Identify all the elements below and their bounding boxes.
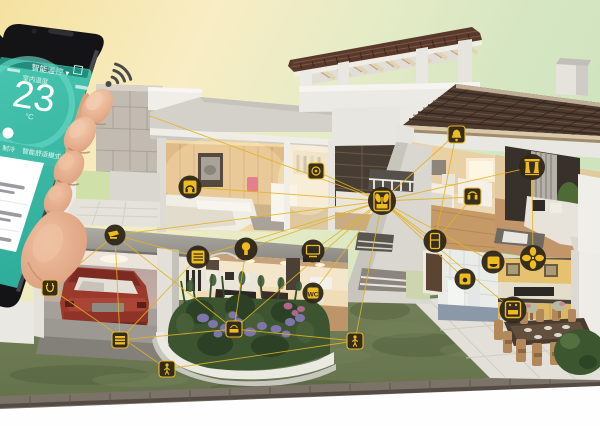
svg-text:WC: WC: [308, 292, 319, 299]
